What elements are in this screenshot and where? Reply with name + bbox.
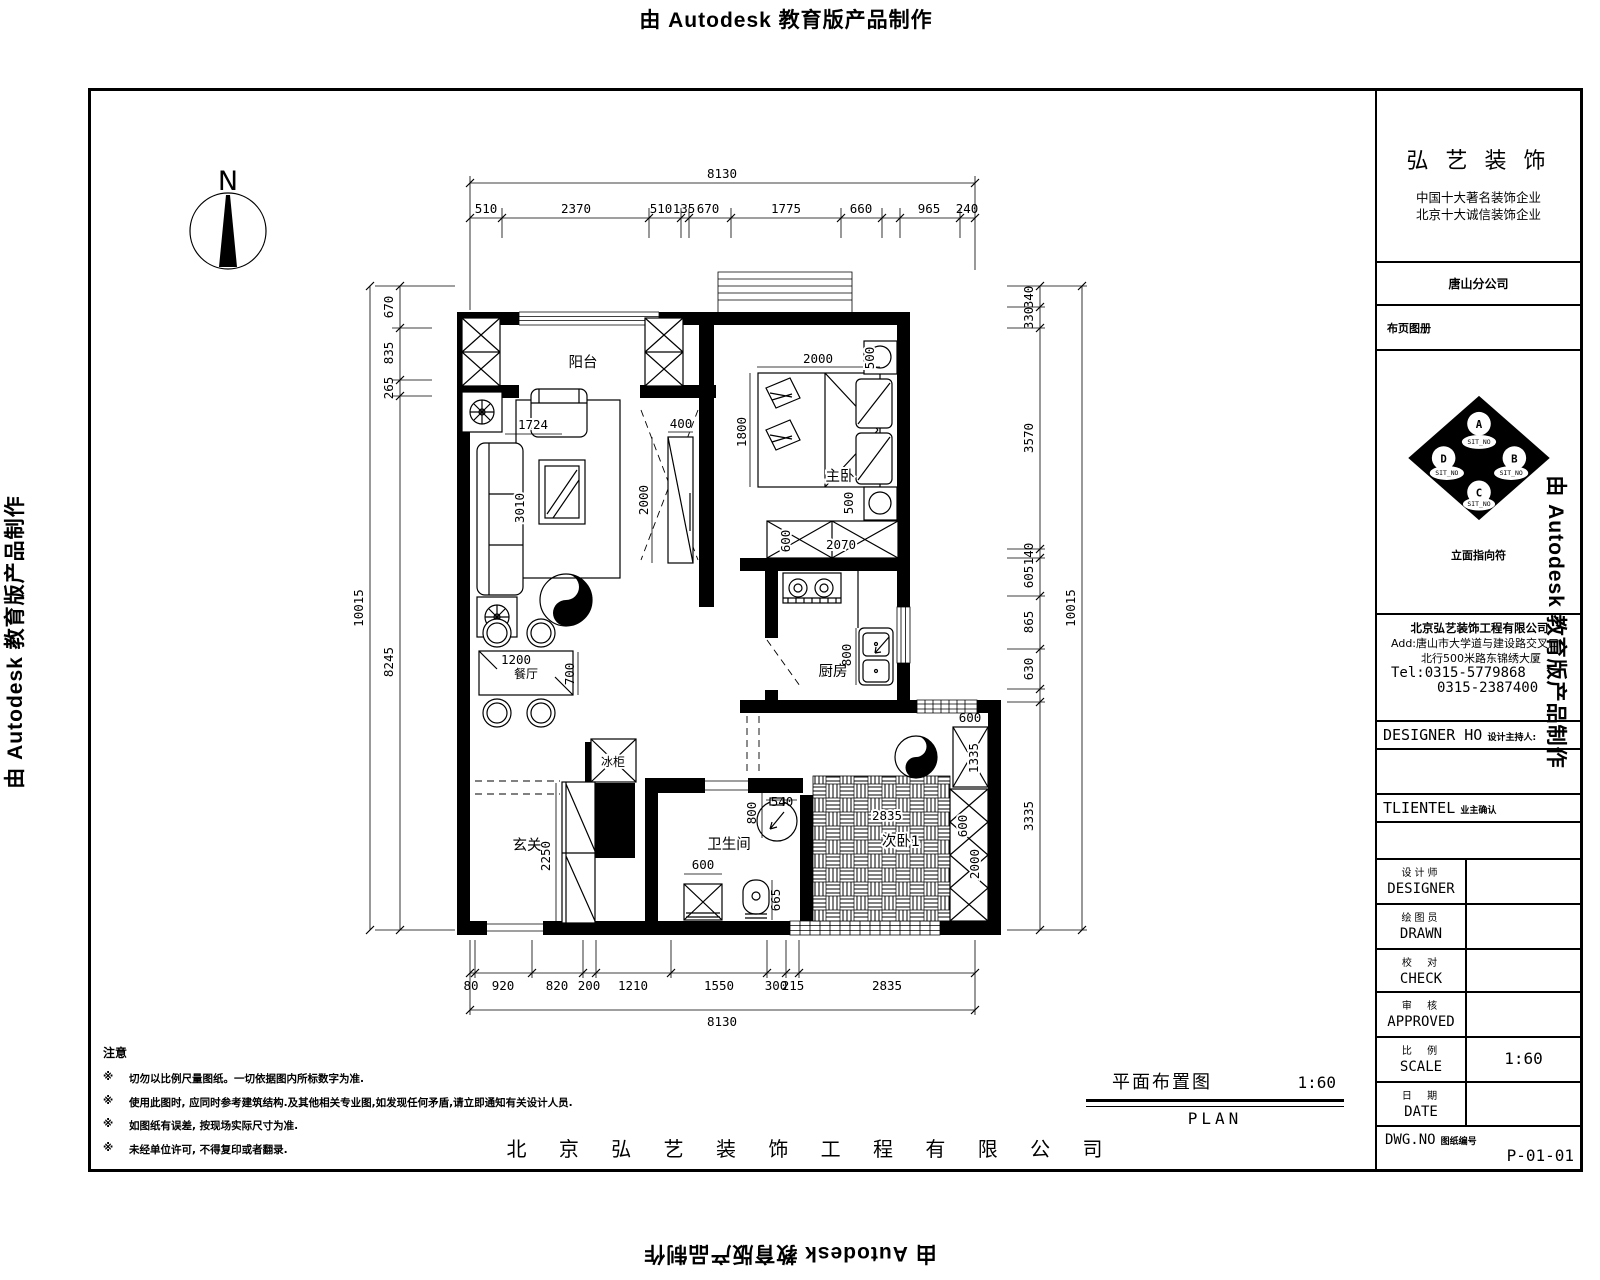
dim: 920 [492,978,515,993]
client-label-en: TLIENTEL [1383,799,1455,817]
dim: 1550 [704,978,734,993]
dim: 600 [778,530,793,553]
dim: 750 [797,555,820,570]
field-label-cn: 校 对 [1377,954,1465,969]
decor-swirl [540,574,592,626]
notes-title: 注意 [103,1044,623,1061]
field-label-cn: 审 核 [1377,997,1465,1012]
designer-host-label-en: DESIGNER HO [1383,726,1482,744]
note-marker: ※ [103,1118,129,1133]
decor-rosette [895,736,937,778]
dim: 820 [546,978,569,993]
room-label-fridge: 冰柜 [601,755,625,769]
field-label-en: SCALE [1377,1059,1465,1075]
room-label-master-bedroom: 主卧 [826,468,855,485]
symbol-sit-no: SIT_NO [1467,500,1490,508]
dim: 500 [841,492,856,515]
field-scale: 比 例SCALE 1:60 [1377,1038,1580,1083]
note-marker: ※ [103,1142,129,1157]
dim: 8245 [381,647,396,677]
dim: 3010 [512,493,527,523]
room-label-bedroom2: 次卧1 [882,833,920,850]
symbol-sit-no: SIT_NO [1499,469,1522,477]
field-label-en: DRAWN [1377,926,1465,942]
field-label-cn: 比 例 [1377,1042,1465,1057]
sheet-catalog: 布页图册 [1377,306,1580,351]
dim: 670 [381,296,396,319]
dim: 605 [1021,566,1036,589]
dim: 670 [697,201,720,216]
company-slogan-2: 北京十大诚信装饰企业 [1377,206,1580,223]
dim: 240 [956,201,979,216]
dim: 400 [670,416,693,431]
dim: 510 [650,201,673,216]
dim: 1210 [618,978,648,993]
dim: 510 [475,201,498,216]
field-value [1467,905,1580,948]
note-text: 切勿以比例尺量图纸。一切依据图内所标数字为准. [129,1071,364,1086]
field-label-cn: 绘图员 [1377,909,1465,924]
cad-drawing-sheet: 由 Autodesk 教育版产品制作 由 Autodesk 教育版产品制作 由 … [0,0,1600,1280]
dim: 80 [463,978,478,993]
note-marker: ※ [103,1095,129,1110]
dwg-label: DWG.NO [1385,1132,1436,1148]
caption-subtitle: PLAN [1086,1109,1344,1128]
dim: 1200 [501,652,531,667]
field-approved: 审 核APPROVED [1377,993,1580,1038]
room-label-entry: 玄关 [513,837,542,854]
company-slogan-1: 中国十大著名装饰企业 [1377,189,1580,206]
dwg-number-cell: DWG.NO 图纸编号 P-01-01 [1377,1127,1580,1167]
dim: 1775 [771,201,801,216]
dim: 2070 [826,537,856,552]
note-item: ※ 切勿以比例尺量图纸。一切依据图内所标数字为准. [103,1071,623,1086]
dim: 2000 [967,849,982,879]
dim: 1724 [518,417,548,432]
master-bedroom-furniture [758,341,898,558]
room-label-bathroom: 卫生间 [707,836,751,853]
dim-right-overall: 10015 [1063,589,1078,627]
field-label-cn: 日 期 [1377,1087,1465,1102]
tv-cabinet [668,437,693,563]
dim: 2370 [561,201,591,216]
elevation-symbol-icon: A B C D SIT_NO SIT_NO SIT_NO SIT_NO [1404,393,1554,523]
dim: 265 [381,377,396,400]
dim-bottom-overall: 8130 [707,1014,737,1029]
ceiling-lamp-icon [605,810,621,826]
field-check: 校 对CHECK [1377,950,1580,993]
caption-scale: 1:60 [1297,1073,1336,1092]
field-value [1467,1083,1580,1125]
client-label-cn: 业主确认 [1460,806,1496,816]
dwg-number: P-01-01 [1385,1146,1574,1165]
dim: 665 [768,889,783,912]
note-marker: ※ [103,1071,129,1086]
autodesk-watermark-right: 由 Autodesk 教育版产品制作 [1542,362,1572,882]
room-label-kitchen: 厨房 [819,663,848,680]
dim: 800 [839,644,854,667]
dim: 2000 [803,351,833,366]
drawing-caption: 平面布置图 1:60 PLAN [1086,1068,1344,1128]
symbol-sit-no: SIT_NO [1467,438,1490,446]
title-block-company: 弘 艺 装 饰 中国十大著名装饰企业 北京十大诚信装饰企业 [1377,91,1580,263]
dim: 865 [1021,611,1036,634]
dim: 215 [782,978,805,993]
north-arrow-icon: N [190,166,266,269]
field-drawn: 绘图员DRAWN [1377,905,1580,950]
field-date: 日 期DATE [1377,1083,1580,1127]
north-label: N [218,166,238,197]
field-value [1467,993,1580,1036]
note-text: 如图纸有误差, 按现场实际尺寸为准. [129,1118,298,1133]
caption-rule [1086,1099,1344,1107]
field-label-en: DATE [1377,1104,1465,1120]
dim: 600 [959,710,982,725]
dim: 965 [918,201,941,216]
dim: 3335 [1021,801,1036,831]
balcony-columns [462,318,683,386]
company-name: 弘 艺 装 饰 [1377,143,1580,175]
scale-value: 1:60 [1467,1038,1580,1081]
dim: 600 [692,857,715,872]
dim: 700 [562,663,577,686]
designer-host-label-cn: 设计主持人: [1487,733,1536,743]
note-text: 使用此图时, 应同时参考建筑结构.及其他相关专业图,如发现任何矛盾,请立即通知有… [129,1095,573,1110]
dim: 2000 [636,485,651,515]
dim: 330 [1021,307,1036,330]
room-label-dining: 餐厅 [514,666,538,681]
note-item: ※ 使用此图时, 应同时参考建筑结构.及其他相关专业图,如发现任何矛盾,请立即通… [103,1095,623,1110]
symbol-letter-c: C [1475,487,1481,500]
symbol-sit-no: SIT_NO [1435,469,1458,477]
dim: 3570 [1021,423,1036,453]
dim: 800 [744,802,759,825]
dim: 540 [771,794,794,809]
note-item: ※ 如图纸有误差, 按现场实际尺寸为准. [103,1118,623,1133]
dim: 660 [850,201,873,216]
dim: 135 [673,201,696,216]
dim: 600 [955,815,970,838]
branch-office: 唐山分公司 [1377,263,1580,306]
dim: 1335 [966,743,981,773]
field-label-cn: 设计师 [1377,864,1465,879]
field-value [1467,950,1580,991]
room-label-balcony: 阳台 [569,354,598,371]
field-label-en: DESIGNER [1377,881,1465,897]
dim-top-overall: 8130 [707,166,737,181]
dim: 630 [1021,658,1036,681]
dim: 340 [1021,286,1036,309]
dim: 835 [381,342,396,365]
autodesk-watermark-bottom: 由 Autodesk 教育版产品制作 [0,1240,1580,1270]
dim: 140 [1021,543,1036,566]
living-room-furniture [462,389,693,637]
note-text: 未经单位许可, 不得复印或者翻录. [129,1142,288,1157]
symbol-letter-b: B [1511,452,1518,465]
field-label-en: CHECK [1377,971,1465,987]
dwg-label-cn: 图纸编号 [1441,1137,1477,1147]
field-label-en: APPROVED [1377,1014,1465,1030]
autodesk-watermark-left: 由 Autodesk 教育版产品制作 [0,382,29,902]
dim: 2835 [872,978,902,993]
dim: 2835 [872,808,902,823]
dim-left-overall: 10015 [351,589,366,627]
symbol-letter-a: A [1475,418,1482,431]
dim: 500 [862,347,877,370]
caption-title: 平面布置图 [1112,1068,1212,1094]
autodesk-watermark-top: 由 Autodesk 教育版产品制作 [0,4,1572,34]
shoe-cabinet [562,782,595,923]
dim: 200 [578,978,601,993]
symbol-letter-d: D [1440,452,1446,465]
footer-company-name: 北 京 弘 艺 装 饰 工 程 有 限 公 司 [371,1133,1251,1162]
dim: 1800 [734,417,749,447]
